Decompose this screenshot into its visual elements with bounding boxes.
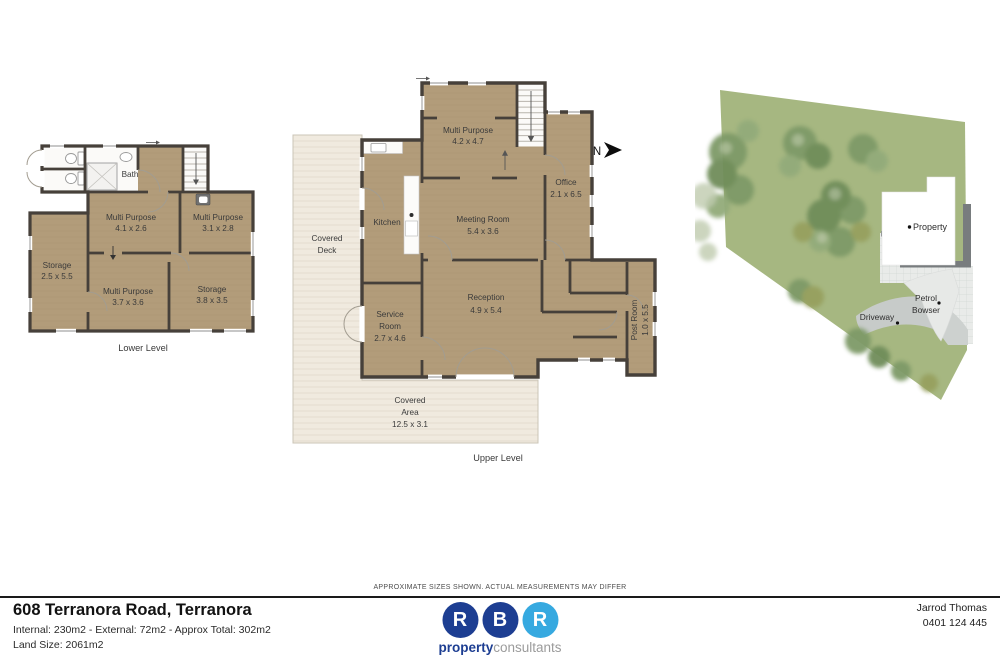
floorplan-page: Bath Multi Purpose 4.1 x 2.6 Multi Purpo…: [0, 0, 1000, 666]
upper-level-title: Upper Level: [473, 453, 523, 463]
room-dims-post-room: 1.0 x 5.5: [641, 304, 650, 336]
room-label-office: Office: [555, 178, 577, 187]
room-label-storage2: Storage: [198, 285, 227, 294]
room-label-post-room: Post Room: [630, 300, 639, 341]
divider-rule: [0, 596, 1000, 598]
logo-circle-b: B: [482, 602, 518, 638]
room-dims-covered-area: 12.5 x 3.1: [392, 420, 428, 429]
room-label-mp2: Multi Purpose: [193, 213, 244, 222]
agent-phone: 0401 124 445: [917, 616, 987, 631]
room-label-storage1: Storage: [43, 261, 72, 270]
footer: APPROXIMATE SIZES SHOWN. ACTUAL MEASUREM…: [0, 580, 1000, 666]
room-label-meeting: Meeting Room: [456, 215, 509, 224]
room-label-bath: Bath: [122, 170, 139, 179]
room-dims-mp3: 3.7 x 3.6: [112, 298, 144, 307]
property-label: Property: [913, 222, 948, 232]
property-address: 608 Terranora Road, Terranora: [13, 601, 271, 620]
brand-property: property: [438, 640, 493, 655]
logo-circle-r1: R: [442, 602, 478, 638]
brand-consultants: consultants: [493, 640, 561, 655]
room-dims-storage2: 3.8 x 3.5: [196, 296, 228, 305]
room-label-service-2: Room: [379, 322, 401, 331]
room-label-mp1: Multi Purpose: [106, 213, 157, 222]
room-label-multipurpose-upper: Multi Purpose: [443, 126, 494, 135]
room-dims-reception: 4.9 x 5.4: [470, 306, 502, 315]
address-block: 608 Terranora Road, Terranora Internal: …: [13, 601, 271, 652]
room-dims-service: 2.7 x 4.6: [374, 334, 406, 343]
brand-wordmark: propertyconsultants: [438, 640, 561, 655]
floor-plan-upper: N Multi Purpose 4.2 x 4.7 Office 2.1 x 6…: [290, 75, 670, 470]
room-label-covered-area-2: Area: [401, 408, 419, 417]
floor-plan-lower: Bath Multi Purpose 4.1 x 2.6 Multi Purpo…: [18, 136, 268, 360]
room-label-mp3: Multi Purpose: [103, 287, 154, 296]
room-label-covered-area-1: Covered: [395, 396, 426, 405]
agent-block: Jarrod Thomas 0401 124 445: [917, 601, 987, 631]
room-dims-multipurpose-upper: 4.2 x 4.7: [452, 137, 484, 146]
north-arrow-icon: N: [593, 142, 622, 158]
room-label-covered-deck-1: Covered: [312, 234, 343, 243]
disclaimer-text: APPROXIMATE SIZES SHOWN. ACTUAL MEASUREM…: [0, 584, 1000, 591]
north-label: N: [593, 146, 601, 158]
brand-logo: R B R propertyconsultants: [438, 602, 561, 655]
room-dims-mp1: 4.1 x 2.6: [115, 224, 147, 233]
lower-level-title: Lower Level: [118, 343, 168, 353]
room-dims-meeting: 5.4 x 3.6: [467, 227, 499, 236]
room-label-kitchen: Kitchen: [373, 218, 401, 227]
petrol-label-1: Petrol: [915, 293, 937, 303]
room-dims-storage1: 2.5 x 5.5: [41, 272, 73, 281]
room-label-service-1: Service: [376, 310, 404, 319]
petrol-label-2: Bowser: [912, 305, 940, 315]
land-size: Land Size: 2061m2: [13, 638, 271, 653]
room-label-reception: Reception: [468, 293, 505, 302]
site-plan: Property Petrol Bowser Driveway: [695, 80, 985, 410]
logo-circles: R B R: [438, 602, 561, 638]
room-label-covered-deck-2: Deck: [318, 246, 338, 255]
room-dims-mp2: 3.1 x 2.8: [202, 224, 234, 233]
room-dims-office: 2.1 x 6.5: [550, 190, 582, 199]
logo-circle-r2: R: [522, 602, 558, 638]
agent-name: Jarrod Thomas: [917, 601, 987, 616]
size-summary: Internal: 230m2 - External: 72m2 - Appro…: [13, 623, 271, 638]
driveway-label: Driveway: [860, 312, 895, 322]
